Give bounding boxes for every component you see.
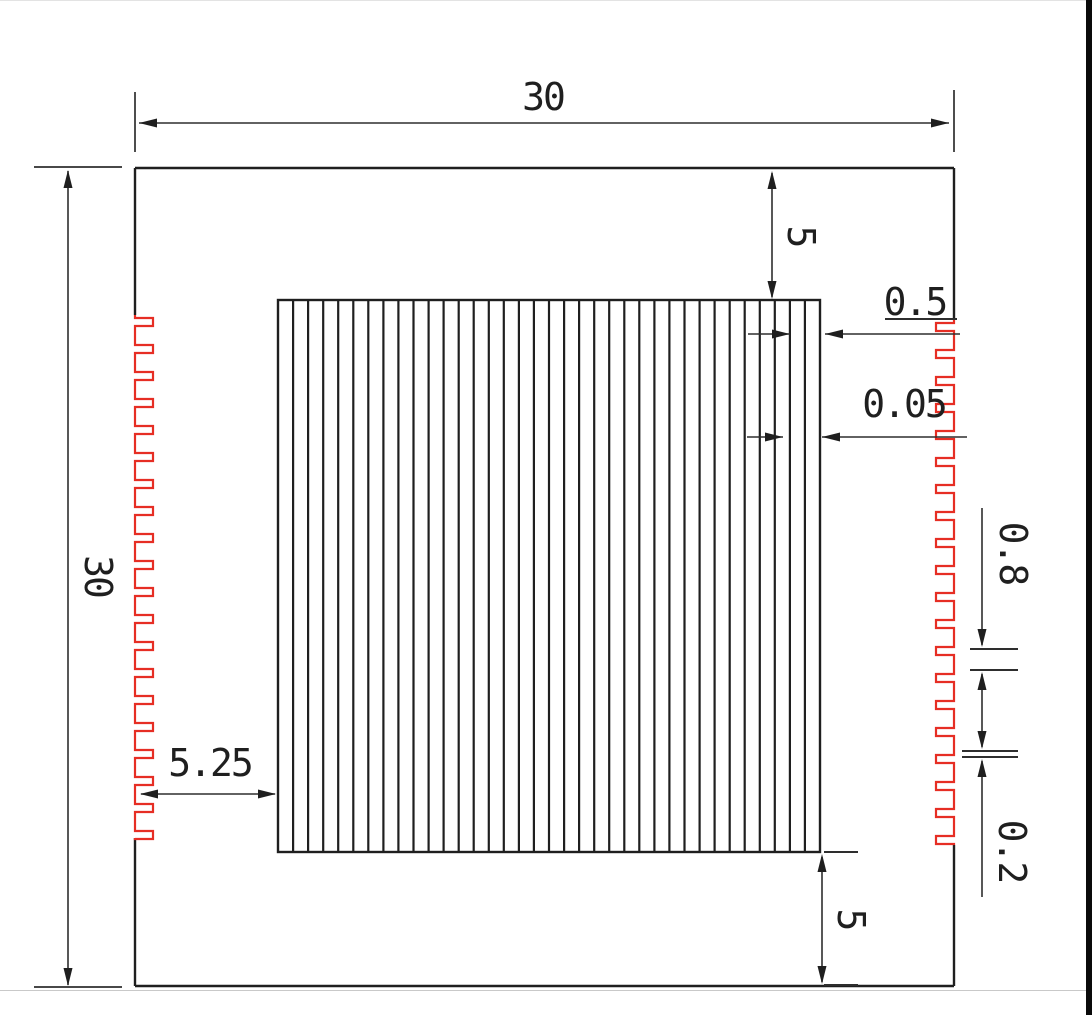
dim-arrow-grating-left-offset-right bbox=[258, 790, 276, 799]
dim-arrow-grating-top-offset-top bbox=[768, 171, 777, 189]
dim-arrow-grating-bottom-offset-bottom bbox=[818, 966, 827, 984]
dim-arrow-slot-pitch-right bbox=[825, 330, 843, 339]
dim-arrow-serration-tooth-lower bbox=[978, 759, 987, 777]
dim-arrow-serration-middle-bottom bbox=[978, 731, 987, 749]
dim-label-slot-line-width: 0.05 bbox=[862, 385, 946, 423]
dim-arrow-slot-pitch-left bbox=[772, 330, 790, 339]
drawing-canvas: 30 30 5 0.5 0.05 0.8 0.2 5.25 5 bbox=[0, 0, 1092, 1024]
canvas-bottom-hairline bbox=[0, 990, 1087, 991]
dim-label-slot-pitch: 0.5 bbox=[884, 283, 947, 321]
dim-label-serration-pitch: 0.8 bbox=[994, 522, 1032, 585]
dim-label-grating-bottom-offset: 5 bbox=[832, 909, 870, 930]
drawing-linework bbox=[0, 0, 1092, 1024]
dim-arrow-overall-width-right bbox=[931, 119, 949, 128]
canvas-top-hairline bbox=[0, 0, 1092, 1]
dim-arrow-grating-bottom-offset-top bbox=[818, 854, 827, 872]
dim-arrow-overall-height-bottom bbox=[64, 968, 73, 986]
canvas-right-border bbox=[1086, 0, 1092, 1015]
dim-label-overall-width: 30 bbox=[522, 78, 564, 116]
dim-arrow-overall-width-left bbox=[139, 119, 157, 128]
dim-label-grating-top-offset: 5 bbox=[782, 226, 820, 247]
dim-arrow-grating-top-offset-bottom bbox=[768, 281, 777, 299]
dim-arrow-overall-height-top bbox=[64, 170, 73, 188]
dim-arrow-grating-left-offset-left bbox=[140, 790, 158, 799]
dim-arrow-serration-middle-top bbox=[978, 672, 987, 690]
dim-label-overall-height: 30 bbox=[79, 555, 117, 597]
dim-label-serration-tooth: 0.2 bbox=[993, 820, 1031, 883]
dim-arrow-slot-line-width-right bbox=[822, 433, 840, 442]
dim-label-grating-left-offset: 5.25 bbox=[168, 744, 252, 782]
dim-arrow-serration-pitch-upper bbox=[978, 629, 987, 647]
serrated-edge-left bbox=[135, 315, 153, 839]
